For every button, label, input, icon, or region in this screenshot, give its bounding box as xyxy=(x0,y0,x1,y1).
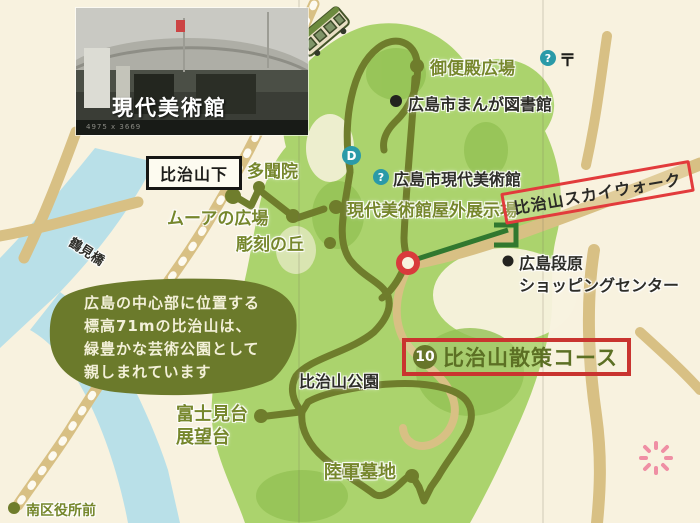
tram-stop-d-icon: D xyxy=(342,146,361,165)
hijiyama-walking-course-map: 現代美術館 4975 x 3669 比治山下 多聞院 ムーアの広場 彫刻の丘 御… xyxy=(0,0,700,523)
label-gobinden-plaza: 御便殿広場 xyxy=(430,54,515,79)
flower-mark xyxy=(641,443,671,473)
label-moca-outdoor: 現代美術館屋外展示場 xyxy=(347,196,517,221)
description-line: 広島の中心部に位置する xyxy=(84,292,260,315)
description-line: 標高71mの比治山は、 xyxy=(84,315,260,338)
label-danbara-1: 広島段原 xyxy=(519,250,583,274)
label-fujimidai-1: 富士見台 xyxy=(176,404,248,425)
photo-watermark: 4975 x 3669 xyxy=(86,123,141,131)
label-fujimidai-2: 展望台 xyxy=(176,427,230,448)
station-hijiyamashita: 比治山下 xyxy=(146,156,242,190)
label-moore-plaza: ムーアの広場 xyxy=(167,204,268,229)
course-title: 比治山散策コース xyxy=(443,342,618,372)
label-moca: 広島市現代美術館 xyxy=(393,166,521,190)
label-tamonin: 多聞院 xyxy=(247,157,298,182)
photo-strip: 4975 x 3669 xyxy=(76,120,308,135)
museum-photo-inset: 現代美術館 4975 x 3669 xyxy=(76,8,308,135)
info-icon-moca: ? xyxy=(373,169,389,185)
label-danbara-2: ショッピングセンター xyxy=(519,272,679,296)
course-number: 10 xyxy=(413,345,437,369)
park-description: 広島の中心部に位置する 標高71mの比治山は、 緑豊かな芸術公園として 親しまれ… xyxy=(84,292,260,384)
course-badge: 10 比治山散策コース xyxy=(402,338,631,376)
info-icon: ? xyxy=(540,50,556,66)
label-manga-library: 広島市まんが図書館 xyxy=(408,91,552,115)
description-line: 緑豊かな芸術公園として xyxy=(84,338,260,361)
label-hijiyama-park: 比治山公園 xyxy=(299,368,379,392)
post-office-icon: 〒 xyxy=(559,46,576,71)
photo-caption: 現代美術館 xyxy=(112,92,227,122)
label-army-cemetery: 陸軍墓地 xyxy=(324,458,396,484)
description-line: 親しまれています xyxy=(84,361,260,384)
skywalk-entrance-marker xyxy=(399,254,417,272)
label-minamikuyakusho: 南区役所前 xyxy=(26,500,96,520)
label-sculpture-hill: 彫刻の丘 xyxy=(236,230,304,255)
